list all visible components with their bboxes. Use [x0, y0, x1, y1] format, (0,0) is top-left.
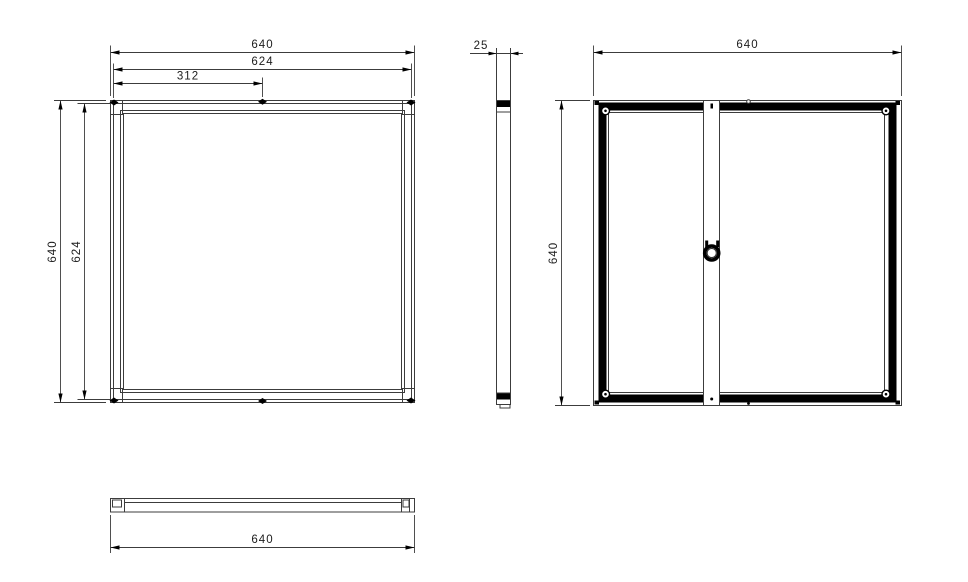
frame-profile-outline [111, 101, 415, 403]
end-cap-block [403, 500, 409, 507]
technical-drawing-canvas: 640 624 312 640 624 25 [0, 0, 968, 582]
bottom-view-dimensions: 640 [111, 515, 415, 553]
panel-inner-edge [609, 113, 885, 393]
profile-bottom-cap [497, 393, 511, 408]
dim-label-rear-width: 640 [736, 39, 758, 51]
screw-icon [882, 107, 890, 115]
dim-label-front-height-inner: 624 [71, 240, 83, 262]
dim-label-front-width-outer: 640 [251, 39, 273, 51]
fixing-point-markers [110, 99, 416, 404]
side-view-dimensions: 25 [470, 40, 523, 55]
screw-icon [602, 107, 610, 115]
rear-view [594, 100, 902, 406]
dim-label-side-depth: 25 [474, 40, 489, 52]
profile-top-cap [497, 101, 511, 113]
screw-icon [882, 390, 890, 398]
front-view [110, 99, 416, 404]
dim-label-bottom-length: 640 [251, 534, 273, 546]
dim-label-front-height-outer: 640 [47, 240, 59, 262]
panel-frame-band [603, 107, 893, 399]
end-cap-block [113, 500, 122, 507]
dim-label-front-width-inner: 624 [251, 56, 273, 68]
bottom-view [111, 499, 415, 513]
screw-icon [602, 390, 610, 398]
front-view-dimensions: 640 624 312 640 624 [47, 39, 415, 403]
corner-caps [595, 101, 901, 405]
dim-label-rear-height: 640 [548, 242, 560, 264]
extension-lines [54, 46, 415, 403]
extension-lines [555, 46, 902, 406]
panel-outer-edge [594, 101, 902, 406]
center-hole-markers [747, 100, 751, 405]
dim-label-front-width-half: 312 [177, 71, 199, 83]
side-view [497, 48, 511, 408]
frame-corner-blocks [111, 101, 415, 403]
